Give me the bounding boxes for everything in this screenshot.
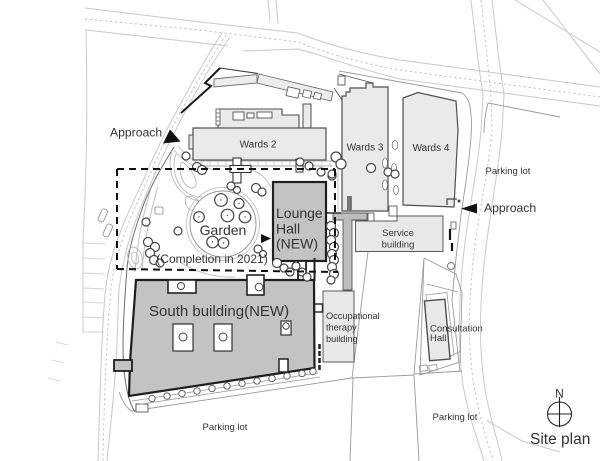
svg-text:Service: Service bbox=[382, 228, 414, 239]
svg-text:therapy: therapy bbox=[326, 323, 357, 333]
svg-text:Approach: Approach bbox=[110, 126, 162, 140]
svg-text:Garden: Garden bbox=[200, 222, 247, 238]
svg-text:Lounge: Lounge bbox=[276, 205, 323, 221]
svg-text:Parking lot: Parking lot bbox=[203, 422, 248, 433]
svg-text:Parking lot: Parking lot bbox=[433, 412, 478, 423]
svg-text:Occupational: Occupational bbox=[326, 311, 380, 321]
svg-text:(NEW): (NEW) bbox=[276, 236, 318, 252]
svg-text:Parking lot: Parking lot bbox=[486, 166, 531, 177]
svg-text:Hall: Hall bbox=[276, 221, 300, 237]
svg-text:Approach: Approach bbox=[484, 201, 536, 215]
svg-text:South building(NEW): South building(NEW) bbox=[149, 303, 289, 320]
svg-text:Wards 4: Wards 4 bbox=[413, 143, 450, 154]
svg-text:building: building bbox=[326, 334, 358, 344]
svg-text:Site plan: Site plan bbox=[530, 431, 590, 448]
svg-text:(Completion in 2021): (Completion in 2021) bbox=[156, 252, 267, 266]
svg-text:N: N bbox=[555, 387, 564, 401]
svg-text:Wards 2: Wards 2 bbox=[240, 140, 277, 151]
svg-text:building: building bbox=[382, 240, 415, 251]
svg-text:Wards 3: Wards 3 bbox=[347, 143, 384, 154]
svg-text:Hall: Hall bbox=[430, 333, 446, 344]
